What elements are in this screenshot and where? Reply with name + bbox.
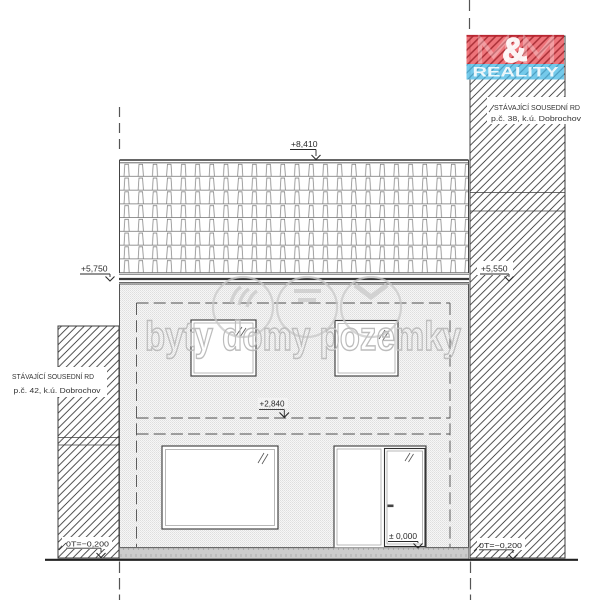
svg-text:p.č. 42, k.ú. Dobrochov: p.č. 42, k.ú. Dobrochov [14, 386, 101, 395]
svg-text:+5,750: +5,750 [81, 265, 108, 274]
svg-text:0T=−0,200: 0T=−0,200 [479, 541, 522, 550]
svg-text:+8,410: +8,410 [291, 140, 318, 149]
svg-text:± 0,000: ± 0,000 [389, 532, 418, 541]
svg-text:STÁVAJÍCÍ SOUSEDNÍ RD: STÁVAJÍCÍ SOUSEDNÍ RD [12, 372, 94, 381]
svg-text:REALITY: REALITY [473, 65, 559, 80]
svg-text:byty domy pozemky: byty domy pozemky [145, 313, 461, 359]
svg-text:p.č. 38, k.ú. Dobrochov: p.č. 38, k.ú. Dobrochov [491, 114, 581, 123]
svg-text:+2,840: +2,840 [260, 400, 286, 409]
svg-text:STÁVAJÍCÍ SOUSEDNÍ RD: STÁVAJÍCÍ SOUSEDNÍ RD [494, 103, 580, 112]
svg-text:0T=−0,200: 0T=−0,200 [66, 540, 109, 549]
svg-text:+5,550: +5,550 [481, 265, 508, 274]
